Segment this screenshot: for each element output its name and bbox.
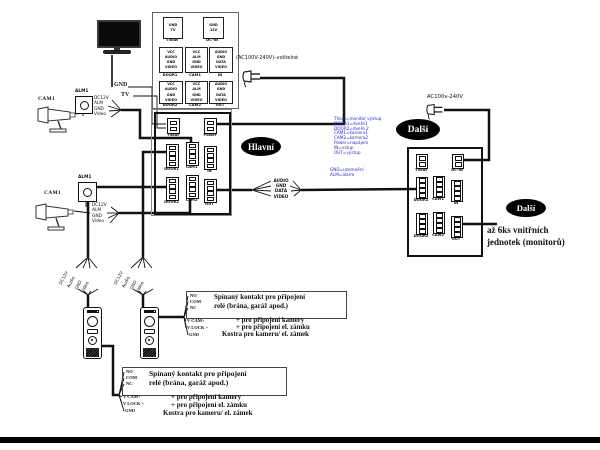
callout1-term-vlock: V LOCK +: [187, 326, 208, 331]
pinout-cam2-label: CAM2: [184, 103, 206, 107]
alarm1-sensor: [75, 96, 93, 114]
callout2-term-vlock: V LOCK +: [123, 402, 144, 407]
main-in-connector: [204, 146, 217, 170]
tv-monitor: [97, 20, 141, 48]
next-unit-badge-1: Další: [396, 119, 440, 140]
callout2-term-gnd: GND: [125, 409, 135, 414]
callout2-term-com: COM: [126, 376, 137, 381]
pinout-in: AUDIOGNDDATAVIDEO: [209, 47, 233, 73]
door-station-1: [83, 307, 102, 359]
callout1-cam-line: + pro připojení kamery: [236, 317, 304, 324]
wiring-diagram: GND TV CAM1 ALM1 DC12VALMGNDVideo CAM1 A…: [0, 0, 600, 450]
callout2-relay-line1: Spínaný kontakt pro připojení: [149, 369, 247, 378]
alarm2-sensor-ring: [83, 188, 92, 197]
station2-lens-icon: [144, 316, 155, 327]
main-power-label: Power: [199, 133, 221, 137]
camera2-wire-labels: DC12VALMGNDVideo: [92, 203, 107, 224]
main-power-connector: [204, 118, 217, 134]
station1-nameplate: [87, 329, 98, 334]
unit2-cam1-connector: [433, 176, 445, 198]
alarm1-label: ALM1: [75, 90, 88, 95]
main-unit-badge: Hlavní: [241, 137, 281, 156]
main-out-connector: [204, 179, 217, 203]
unit2-dcin-label: DC-IN: [442, 168, 472, 172]
station1-lens-icon: [87, 316, 98, 327]
alarm2-label: ALM1: [78, 176, 91, 181]
main-cam2-connector: [186, 175, 199, 199]
power-right-label: AC100v-240V: [427, 95, 463, 101]
main-tvout-label: TVout: [162, 133, 184, 137]
pinout-door1: VCCAUDIOGNDVIDEO: [159, 47, 183, 73]
expansion-note-line2: jednotek (monitorů): [487, 238, 565, 248]
callout1-term-nc: NC: [190, 306, 197, 311]
expansion-note-line1: až 6ks vnitřních: [487, 226, 549, 236]
station2-call-button: [145, 336, 154, 345]
callout1-term-com: COM: [190, 300, 201, 305]
camera1-name-label: CAM1: [38, 96, 55, 102]
pinout-cam1: VCCALMGNDVIDEO: [185, 47, 208, 73]
callout1-term-vcam: V CAM+: [187, 319, 205, 324]
unit2-door1-connector: [416, 177, 428, 199]
main-in-label: IN: [195, 169, 224, 173]
station2-speaker-grille: [143, 348, 156, 357]
pinout-dcin: GND12V: [203, 17, 224, 39]
blue-legend-lines2: GND=uzemněníALM=alarm: [330, 168, 364, 178]
callout2-term-nc: NC: [126, 382, 133, 387]
pinout-out: AUDIOGNDDATAVIDEO: [209, 81, 233, 104]
main-tvout-connector: [167, 118, 180, 134]
callout2-cam-line: + pro připojení kamery: [171, 393, 241, 401]
pinout-tvout: GNDTV: [163, 17, 183, 39]
pinout-door2: VCCAUDIOGNDVIDEO: [159, 81, 183, 104]
monitor-stand-base: [103, 50, 131, 54]
camera2-name-label: CAM1: [44, 190, 61, 196]
callout2-term-no: NO: [126, 370, 133, 375]
callout1-relay-line1: Spínaný kontakt pro připojení: [214, 293, 305, 301]
callout1-lock-line: + pro připojení el. zámku: [236, 324, 310, 331]
unit2-cam2-connector: [433, 212, 445, 234]
unit2-tvout-label: TVout: [406, 168, 436, 172]
power-optional-label: (AC100V-240V)–volitelné: [236, 56, 298, 62]
pinout-door1-label: DOOR1: [159, 73, 181, 77]
callout2-ground-line: Kostra pro kameru/ el. zámek: [163, 409, 253, 417]
pinout-door2-label: DOOR2: [159, 103, 181, 107]
camera1-icon: [36, 104, 80, 136]
main-cam1-connector: [186, 142, 199, 166]
pinout-in-label: IN: [209, 73, 231, 77]
door-station-2: [140, 307, 159, 359]
station1-camera-strip: [87, 310, 99, 313]
unit2-out-connector: [451, 216, 463, 238]
pinout-out-label: OUT: [209, 103, 231, 107]
monitor-gnd-label: GND: [114, 82, 127, 89]
unit2-dcin-connector: [452, 154, 464, 169]
power-plug2-icon: [424, 100, 448, 122]
station2-camera-strip: [144, 310, 156, 313]
station1-speaker-grille: [86, 348, 99, 357]
blue-legend-lines: TVout=monitor výstupDOOR1=dveře1DOOR2=dv…: [334, 117, 381, 155]
pinout-cam1-label: CAM1: [184, 73, 206, 77]
callout2-term-vcam: V CAM+: [123, 395, 141, 400]
pinout-tvout-label: TVout: [161, 38, 183, 42]
station2-nameplate: [144, 329, 155, 334]
unit2-in-label: IN: [441, 201, 471, 205]
callout2-relay-line2: relé (brána, garáž apod.): [149, 378, 228, 387]
bus-wire-labels: AUDIOGNDDATAVIDEO: [266, 178, 296, 199]
alarm2-sensor: [78, 182, 97, 202]
power-plug-icon: [240, 66, 266, 90]
callout1-ground-line: Kostra pro kameru/ el. zámek: [222, 331, 309, 338]
unit2-door2-connector: [416, 213, 428, 235]
pinout-cam2: VCCALMGNDVIDEO: [185, 81, 208, 104]
unit2-tvout-connector: [416, 154, 428, 169]
next-unit-badge-2: Další: [506, 199, 546, 217]
unit2-in-connector: [451, 180, 463, 202]
callout1-term-no: NO: [190, 294, 197, 299]
alarm1-sensor-ring: [80, 101, 89, 110]
pinout-dcin-label: DC-IN: [201, 38, 223, 42]
bottom-divider-bar: [0, 437, 600, 443]
camera1-wire-labels: DC12VALMGNDVideo: [94, 96, 109, 117]
main-out-label: OUT: [195, 202, 224, 206]
callout1-term-gnd: GND: [189, 333, 199, 338]
station1-call-button: [88, 336, 97, 345]
camera2-icon: [34, 200, 78, 234]
callout2-lock-line: + pro připojení el. zámku: [171, 401, 247, 409]
callout1-relay-line2: relé (brána, garáž apod.): [214, 302, 288, 310]
monitor-tv-label: TV: [121, 92, 129, 99]
unit2-out-label: OUT: [441, 237, 471, 241]
